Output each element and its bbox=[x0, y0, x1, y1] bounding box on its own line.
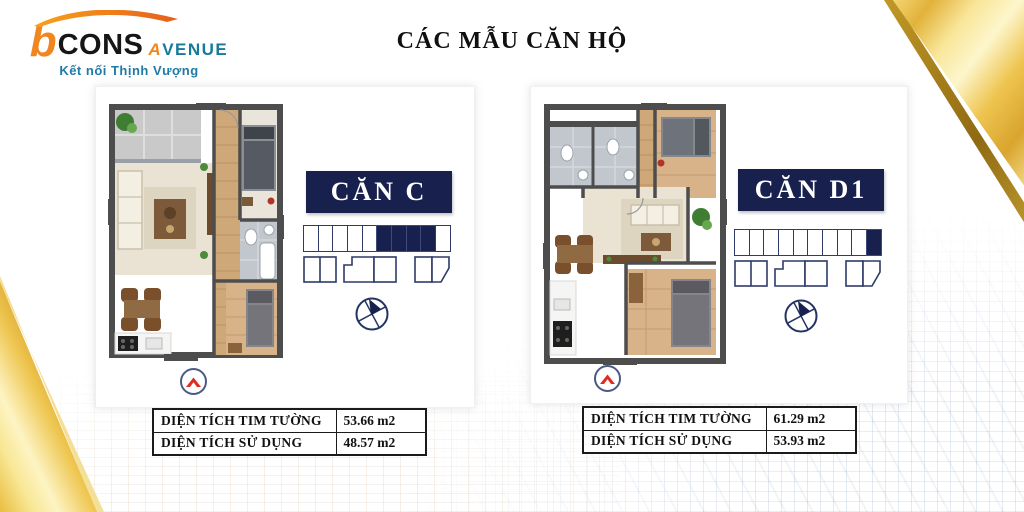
strip-cell bbox=[362, 225, 378, 252]
strip-cell bbox=[318, 225, 334, 252]
scroll-up-icon bbox=[180, 368, 207, 395]
strip-cell bbox=[837, 229, 853, 256]
unit-name-badge: CĂN D1 bbox=[738, 169, 884, 211]
area-table-can-c: DIỆN TÍCH TIM TƯỜNG 53.66 m2 DIỆN TÍCH S… bbox=[152, 408, 427, 456]
area-value: 53.93 m2 bbox=[766, 430, 856, 453]
red-chevron-up-icon bbox=[185, 376, 202, 388]
area-label: DIỆN TÍCH SỬ DỤNG bbox=[583, 430, 766, 453]
area-label: DIỆN TÍCH TIM TƯỜNG bbox=[583, 407, 766, 430]
orange-swoosh-icon bbox=[30, 10, 180, 28]
strip-cell bbox=[793, 229, 809, 256]
strip-cell bbox=[347, 225, 363, 252]
area-value: 61.29 m2 bbox=[766, 407, 856, 430]
compass-icon bbox=[783, 298, 819, 334]
block-lower-shapes bbox=[734, 260, 882, 288]
strip-cell bbox=[749, 229, 765, 256]
strip-cell bbox=[332, 225, 348, 252]
strip-cell-filled bbox=[866, 229, 882, 256]
compass-icon bbox=[354, 296, 390, 332]
strip-cell-filled bbox=[420, 225, 436, 252]
floor-plan-can-d1 bbox=[543, 103, 727, 365]
area-table-can-d1: DIỆN TÍCH TIM TƯỜNG 61.29 m2 DIỆN TÍCH S… bbox=[582, 406, 857, 454]
table-row: DIỆN TÍCH TIM TƯỜNG 53.66 m2 bbox=[153, 409, 426, 432]
strip-cell bbox=[822, 229, 838, 256]
strip-cell-filled bbox=[376, 225, 392, 252]
unit-name-badge: CĂN C bbox=[306, 171, 452, 213]
strip-cell bbox=[763, 229, 779, 256]
area-value: 48.57 m2 bbox=[336, 432, 426, 455]
table-row: DIỆN TÍCH SỬ DỤNG 48.57 m2 bbox=[153, 432, 426, 455]
table-row: DIỆN TÍCH TIM TƯỜNG 61.29 m2 bbox=[583, 407, 856, 430]
strip-cell bbox=[807, 229, 823, 256]
strip-cell bbox=[734, 229, 750, 256]
page-title: CÁC MẪU CĂN HỘ bbox=[0, 28, 1024, 55]
slide-canvas: b CONS AVENUE Kết nối Thịnh Vượng CÁC MẪ… bbox=[0, 0, 1024, 512]
area-value: 53.66 m2 bbox=[336, 409, 426, 432]
gold-ribbon-left bbox=[0, 282, 97, 512]
strip-cell-filled bbox=[406, 225, 422, 252]
scroll-up-icon bbox=[594, 365, 621, 392]
strip-cell bbox=[778, 229, 794, 256]
strip-cell bbox=[851, 229, 867, 256]
unit-card-can-d1: CĂN D1 bbox=[530, 86, 908, 404]
block-lower-shapes bbox=[303, 256, 451, 284]
unit-card-can-c: CĂN C bbox=[95, 86, 475, 408]
area-label: DIỆN TÍCH TIM TƯỜNG bbox=[153, 409, 336, 432]
table-row: DIỆN TÍCH SỬ DỤNG 53.93 m2 bbox=[583, 430, 856, 453]
floor-plan-can-c bbox=[108, 103, 284, 361]
red-chevron-up-icon bbox=[599, 373, 616, 385]
area-label: DIỆN TÍCH SỬ DỤNG bbox=[153, 432, 336, 455]
strip-cell bbox=[435, 225, 451, 252]
block-position-strip bbox=[303, 225, 451, 252]
strip-cell bbox=[303, 225, 319, 252]
strip-cell-filled bbox=[391, 225, 407, 252]
block-position-strip bbox=[734, 229, 882, 256]
